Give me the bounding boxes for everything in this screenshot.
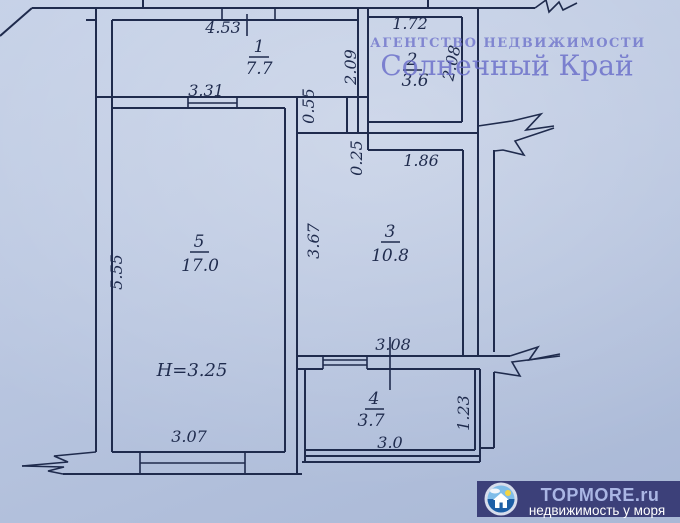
room-label-5: 5 17.0 <box>181 232 219 276</box>
dim-room3-step: 0.25 <box>347 140 366 176</box>
break-mid-right-upper <box>478 114 554 130</box>
dim-room3-top-width: 1.86 <box>403 151 439 170</box>
dim-room4-width: 3.0 <box>377 433 402 452</box>
break-low-right-upper <box>510 347 560 360</box>
dim-room3-bottom-width: 3.08 <box>375 335 411 354</box>
room1-number: 1 <box>254 37 265 57</box>
dim-room2-width: 1.72 <box>392 14 428 33</box>
floorplan-photo: 4.53 3.31 1.72 2.09 2.08 0.55 0.25 1.86 … <box>0 0 680 523</box>
banner-subtitle: недвижимость у моря <box>529 503 665 518</box>
agency-watermark-line2: Солнечный Край <box>380 49 633 82</box>
room5-number: 5 <box>194 232 205 252</box>
floor-plan: 4.53 3.31 1.72 2.09 2.08 0.55 0.25 1.86 … <box>0 0 680 523</box>
dim-room1-width: 4.53 <box>204 18 241 37</box>
room4-area: 3.7 <box>357 411 384 431</box>
room-label-1: 1 7.7 <box>245 37 272 79</box>
room1-area: 7.7 <box>245 59 272 79</box>
room-label-4: 4 3.7 <box>357 389 384 431</box>
dim-room4-height: 1.23 <box>454 395 473 431</box>
break-bottom-left-upper <box>22 452 96 466</box>
room3-area: 10.8 <box>371 246 409 266</box>
room-label-3: 3 10.8 <box>371 222 409 266</box>
banner-title: TOPMORE.ru <box>541 485 660 505</box>
dim-room3-height: 3.67 <box>304 222 323 258</box>
agency-watermark: АГЕНТСТВО НЕДВИЖИМОСТИ Солнечный Край <box>370 36 646 82</box>
break-top-right <box>535 0 577 12</box>
break-mid-right-lower <box>494 128 554 155</box>
break-bottom-left-lower <box>22 466 64 474</box>
room4-number: 4 <box>368 389 380 409</box>
break-line-top-left <box>0 8 32 36</box>
room5-area: 17.0 <box>181 256 219 276</box>
dim-room5-height: 5.55 <box>107 254 126 290</box>
dim-room2-height-left: 2.09 <box>341 49 360 86</box>
ceiling-height-note: H=3.25 <box>156 360 228 381</box>
break-low-right-lower <box>494 356 560 376</box>
dim-hall-step: 0.55 <box>299 88 318 124</box>
topmore-logo-icon <box>485 483 518 516</box>
dim-room5-bottom-width: 3.07 <box>171 427 207 446</box>
dim-room5-top-width: 3.31 <box>188 81 224 100</box>
room3-number: 3 <box>385 222 396 242</box>
topmore-banner: TOPMORE.ru недвижимость у моря <box>477 481 680 518</box>
